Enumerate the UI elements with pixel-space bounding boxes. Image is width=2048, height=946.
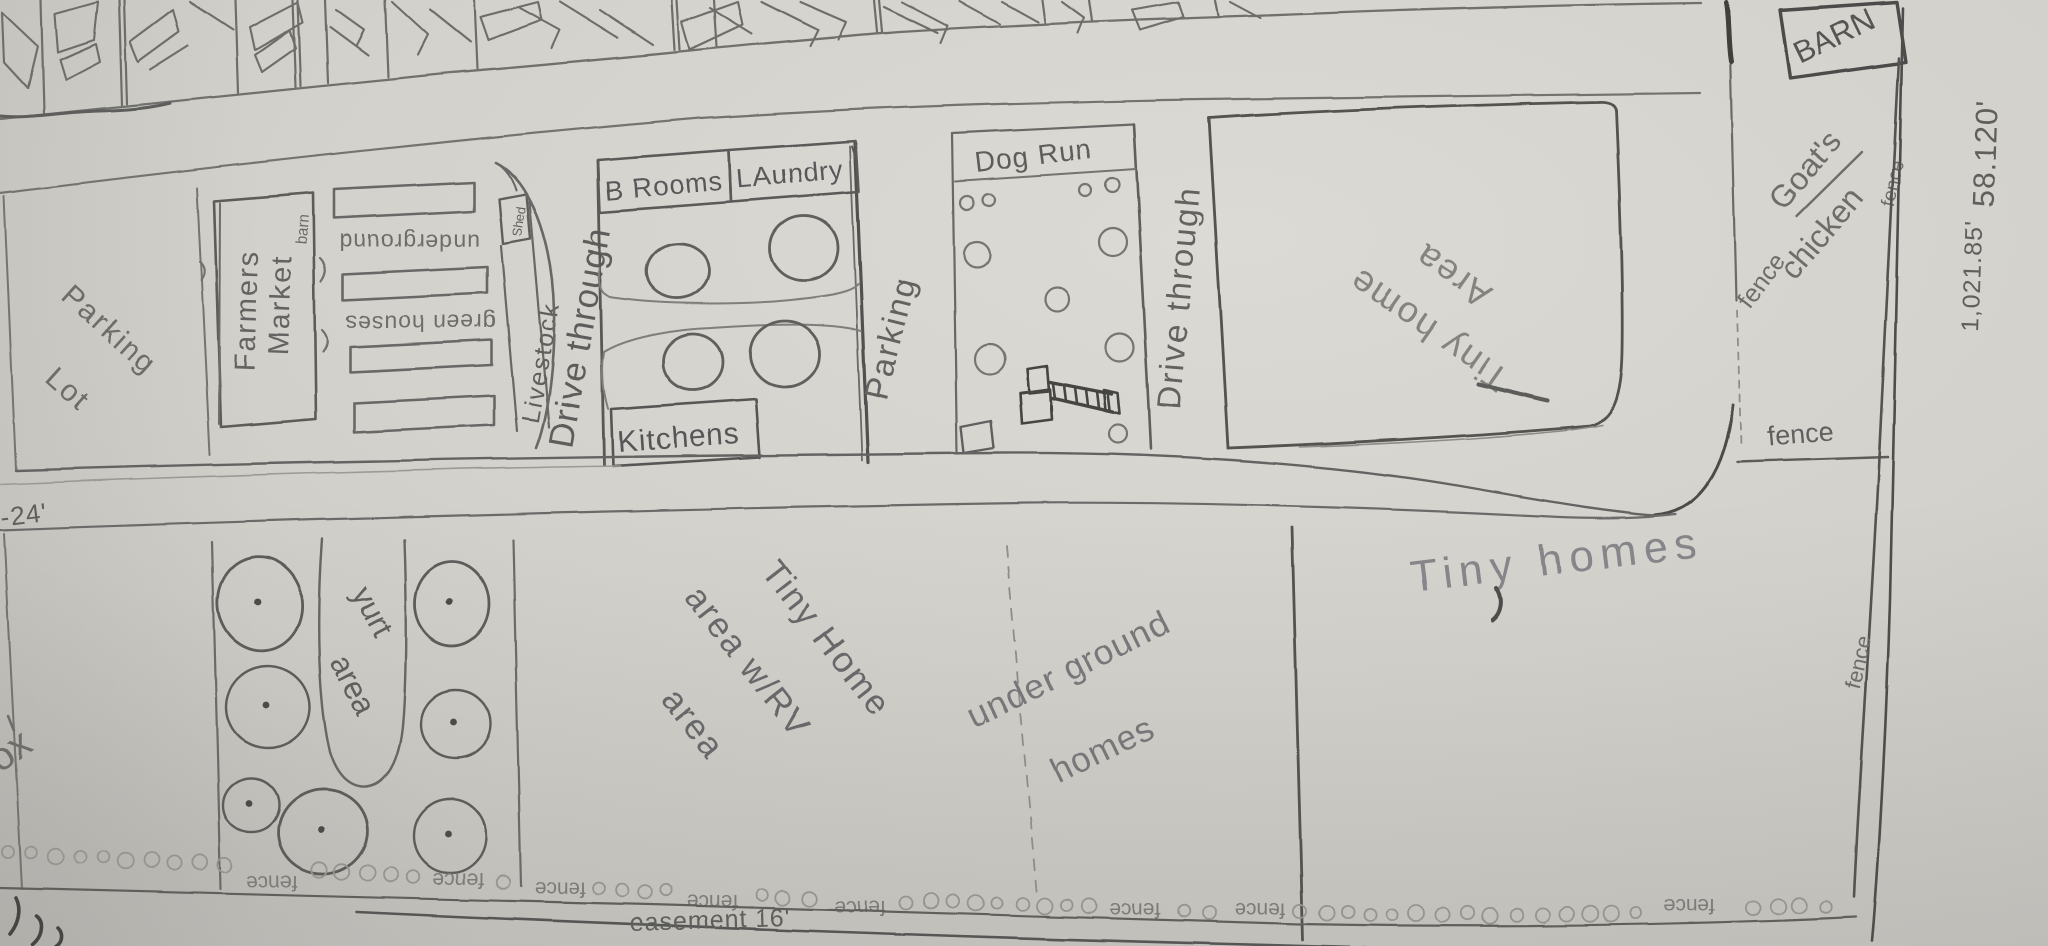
svg-text:easement 16': easement 16' [629, 903, 791, 937]
svg-text:Market: Market [263, 255, 298, 357]
svg-text:fence: fence [246, 871, 297, 894]
svg-text:underground: underground [339, 229, 480, 255]
svg-text:fence: fence [834, 896, 885, 919]
svg-text:fence: fence [432, 868, 483, 891]
svg-text:fence: fence [1766, 416, 1834, 452]
svg-text:fence: fence [1234, 898, 1285, 921]
svg-text:Farmers: Farmers [229, 249, 265, 372]
svg-text:barn: barn [293, 214, 313, 245]
svg-text:green houses: green houses [345, 310, 496, 336]
svg-text:fence: fence [1663, 894, 1714, 917]
svg-text:-24': -24' [0, 497, 49, 532]
svg-text:1,021.85': 1,021.85' [1956, 220, 1988, 332]
svg-text:fence: fence [534, 877, 585, 900]
svg-text:58.120': 58.120' [1966, 99, 2005, 208]
